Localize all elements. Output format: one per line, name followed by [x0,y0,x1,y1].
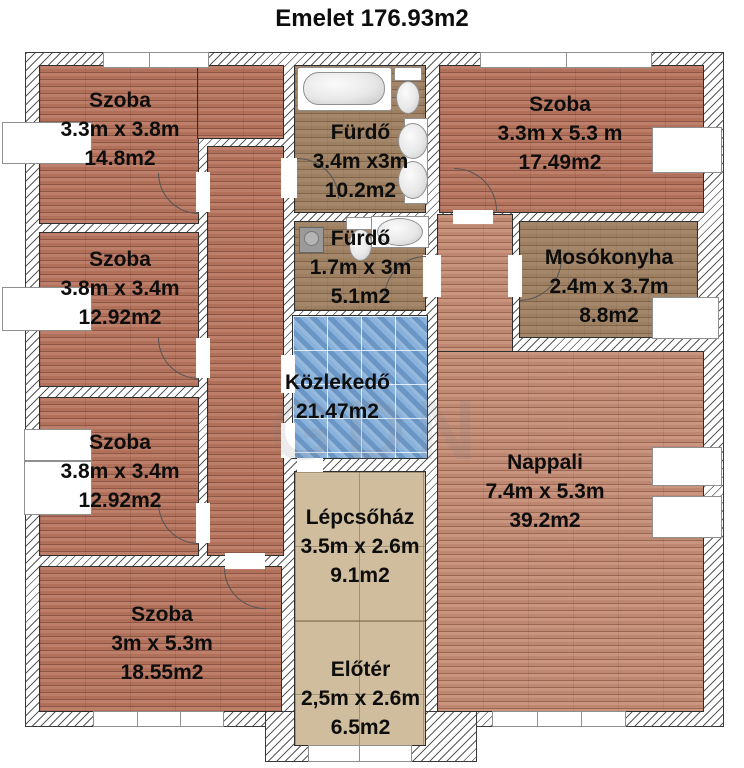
window-pane-divider [149,53,150,67]
label-bathroom1: Fürdő 3.4m x3m 10.2m2 [288,118,433,205]
window-livingroom-b [652,496,722,538]
window-bottom-livingroom [492,711,626,727]
label-livingroom: Nappali 7.4m x 5.3m 39.2m2 [440,448,650,535]
stairwell-foyer-divider [295,621,425,622]
room-area: 10.2m2 [288,176,433,205]
room-area: 18.55m2 [52,658,272,687]
room-name: Szoba [450,90,670,119]
room-area: 39.2m2 [440,506,650,535]
window-top-left [103,52,209,68]
window-pane-divider [566,53,567,67]
room-area: 12.92m2 [40,303,200,332]
label-foyer: Előtér 2,5m x 2.6m 6.5m2 [288,655,433,742]
bathtub-basin-icon [303,72,385,105]
label-szoba-left2: Szoba 3.8m x 3.4m 12.92m2 [40,245,200,332]
room-dims: 3.4m x3m [288,147,433,176]
room-dims: 3m x 5.3m [52,629,272,658]
label-szoba-bottom: Szoba 3m x 5.3m 18.55m2 [52,600,272,687]
toilet-bowl-icon [396,81,420,114]
room-name: Nappali [440,448,650,477]
room-name: Mosókonyha [520,243,698,272]
door-gap-szoba-topright [453,210,493,224]
label-hallway: Közlekedő 21.47m2 [270,368,405,426]
room-area: 8.8m2 [520,301,698,330]
room-name: Fürdő [288,224,433,253]
room-dims: 1.7m x 3m [288,253,433,282]
room-dims: 3.8m x 3.4m [40,274,200,303]
room-area: 5.1m2 [288,282,433,311]
livingroom-arm-floor [438,215,512,352]
corridor-floor [208,147,283,555]
label-laundry: Mosókonyha 2.4m x 3.7m 8.8m2 [520,243,698,330]
room-area: 9.1m2 [290,561,430,590]
room-area: 17.49m2 [450,148,670,177]
room-dims: 3.3m x 3.8m [40,115,200,144]
label-bathroom2: Fürdő 1.7m x 3m 5.1m2 [288,224,433,311]
room-dims: 7.4m x 5.3m [440,477,650,506]
room-name: Szoba [40,86,200,115]
room-name: Szoba [40,428,200,457]
room-area: 6.5m2 [288,713,433,742]
room-name: Fürdő [288,118,433,147]
window-pane-divider [180,712,181,726]
door-gap-room-bottom [225,553,265,569]
room-area: 14.8m2 [40,144,200,173]
window-top-right [480,52,652,68]
window-livingroom-a [652,447,722,486]
room-name: Előtér [288,655,433,684]
window-pane-divider [581,712,582,726]
room-dims: 3.5m x 2.6m [290,532,430,561]
room-name: Szoba [52,600,272,629]
room-dims: 2,5m x 2.6m [288,684,433,713]
room-area: 12.92m2 [40,486,200,515]
window-bottom-szoba [93,711,224,727]
floor-plan: Emelet 176.93m2 [0,0,744,768]
room-name: Szoba [40,245,200,274]
label-szoba-topright: Szoba 3.3m x 5.3 m 17.49m2 [450,90,670,177]
window-pane-divider [537,712,538,726]
room-dims: 3.3m x 5.3 m [450,119,670,148]
room-name: Közlekedő [270,368,405,397]
window-pane-divider [359,746,360,761]
plan-title: Emelet 176.93m2 [0,5,744,33]
label-szoba-topleft: Szoba 3.3m x 3.8m 14.8m2 [40,86,200,173]
window-pane-divider [137,712,138,726]
label-stairwell: Lépcsőház 3.5m x 2.6m 9.1m2 [290,503,430,590]
room-dims: 2.4m x 3.7m [520,272,698,301]
entrance-door [308,745,412,762]
label-szoba-left3: Szoba 3.8m x 3.4m 12.92m2 [40,428,200,515]
room-name: Lépcsőház [290,503,430,532]
room-dims: 3.8m x 3.4m [40,457,200,486]
toilet-tank-icon [394,67,422,81]
room-area: 21.47m2 [270,397,405,426]
room-szoba-topleft-extension-floor [198,66,283,138]
